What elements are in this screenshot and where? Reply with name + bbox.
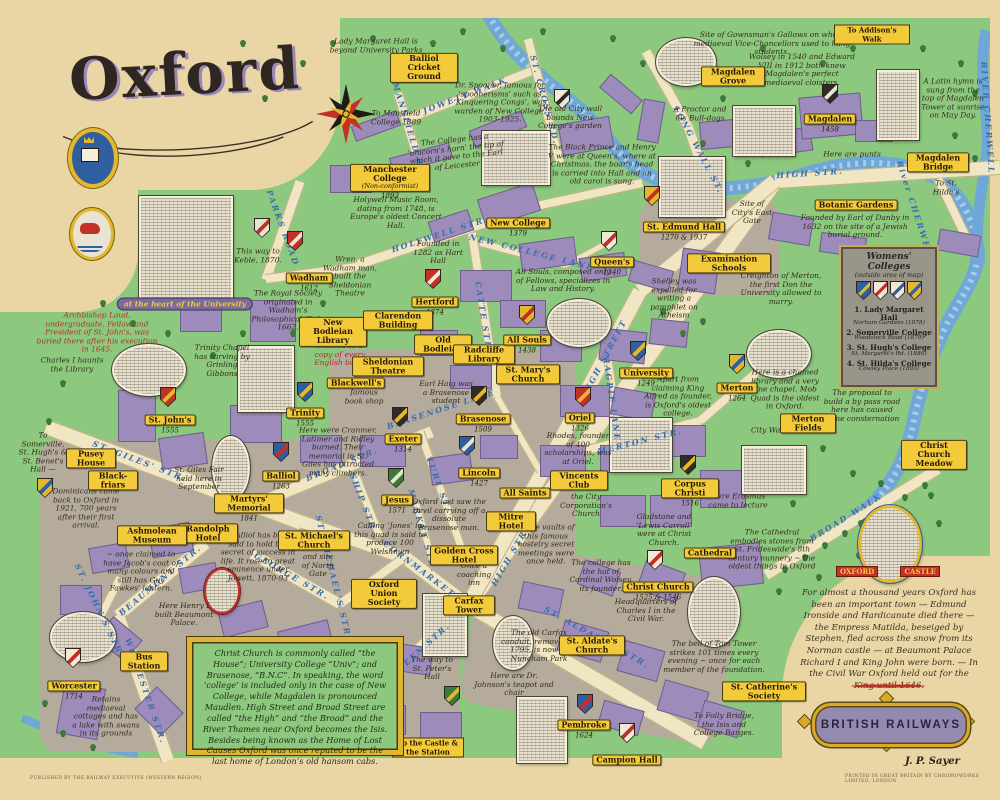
plaque-corpus-christi: Corpus Christi1516 — [661, 478, 719, 507]
plaque-label: Black-friars — [88, 470, 138, 490]
tree-icon — [952, 132, 958, 138]
tree-icon — [820, 445, 826, 451]
ox-icon — [80, 223, 100, 234]
plaque-label: All Saints — [499, 488, 550, 499]
plaque-label: Merton — [716, 383, 757, 394]
plaque-martyrs-memorial: Martyrs' Memorial1841 — [214, 493, 284, 522]
note-trinity-chapel-has-carving-by-grinling-g: Trinity Chapel has carving by Grinling G… — [192, 344, 252, 378]
plaque-label: Magdalen Grove — [701, 66, 765, 86]
ford-waves-icon — [77, 244, 103, 252]
building-block — [480, 435, 518, 459]
founding-date: 1525 & 1546 — [622, 594, 693, 602]
founding-date: 1624 — [557, 732, 610, 740]
note-the-old-city-wall-bounds-new-college-s-g: The old City wall bounds New College's g… — [531, 105, 609, 131]
plaque-label: Bus Station — [120, 651, 168, 671]
plaque-label: St. John's — [145, 415, 196, 426]
plaque-label: Ashmolean Museum — [117, 525, 187, 545]
note-shelley-was-expelled-for-writing-a-pamph: Shelley was expelled for writing a pamph… — [638, 278, 710, 321]
plaque-christ-church-meadow: Christ Church Meadow — [901, 440, 967, 470]
plaque-campion-hall: Campion Hall — [592, 748, 661, 767]
plaque-label: Pembroke — [557, 720, 610, 731]
tree-icon — [972, 155, 978, 161]
plaque-university: University1249 — [619, 361, 673, 388]
founding-date: 1555 — [286, 420, 324, 428]
womens-college-address: Cowley Place (1893) — [845, 367, 933, 373]
plaque-label: Golden Cross Hotel — [430, 545, 498, 565]
plaque-balliol-cricket-ground: Balliol Cricket Ground — [390, 53, 458, 83]
note-st-giles-fair-held-here-in-september: St. Giles Fair held here in September — [172, 466, 226, 492]
plaque-all-souls: All Souls1438 — [503, 328, 551, 355]
tree-icon — [790, 500, 796, 506]
plaque-carfax-tower: Carfax Tower — [443, 595, 495, 616]
plaque-label: Corpus Christi — [661, 478, 719, 498]
plaque-st-catherine-s-society: St. Catherine's Society — [722, 681, 806, 702]
plaque-oxford-union-society: Oxford Union Society — [351, 579, 417, 609]
plaque-st-john-s: St. John's1555 — [145, 408, 196, 435]
womens-college-address: Woodstock Road (1879) — [845, 336, 933, 342]
plaque-label: Exeter — [385, 434, 422, 445]
plaque-examination-schools: Examination Schools — [687, 253, 771, 274]
plaque-label: St. Aldate's Church — [559, 635, 625, 655]
tree-icon — [902, 494, 908, 500]
plaque-st-mary-s-church: St. Mary's Church — [496, 364, 560, 385]
tree-icon — [430, 40, 436, 46]
magdalen-cloisters-vignette — [733, 106, 795, 156]
heart-of-university-caption: at the heart of the University — [117, 298, 253, 311]
plaque-label: Jesus — [381, 495, 413, 506]
somerville-shield — [873, 281, 888, 300]
note-rhodes-founder-of-400-scholarships-was-a: Rhodes, founder of 400 scholarships, was… — [544, 432, 612, 466]
plaque-label: New Bodleian Library — [299, 317, 367, 347]
plaque-manchester-college: Manchester College(Non-conformist)1893 — [350, 164, 430, 200]
plaque-label: Queen's — [590, 257, 634, 268]
founding-date: 1264 — [716, 395, 757, 403]
womens-college-address: Norham Gardens (1878) — [845, 321, 933, 327]
tom-tower-vignette — [688, 577, 740, 647]
magdalen-tower-vignette — [877, 70, 919, 140]
plaque-label: Lincoln — [458, 468, 500, 479]
plaque-label: Carfax Tower — [443, 595, 495, 615]
womens-colleges-panel: Womens' Colleges (outside area of map) 1… — [841, 247, 937, 387]
plaque-label: Manchester College(Non-conformist) — [350, 164, 430, 192]
compass-rose-icon — [314, 82, 378, 146]
plaque-st-michael-s-church: St. Michael's Church — [278, 530, 350, 551]
note-here-are-dr-johnson-s-teapot-and-chair: Here are Dr. Johnson's teapot and chair — [472, 672, 556, 698]
note-to-folly-bridge-the-isis-and-college-bar: To Folly Bridge, the Isis and College Ba… — [690, 712, 758, 738]
tree-icon — [60, 730, 66, 736]
plaque-merton-fields: Merton Fields — [780, 413, 836, 434]
note-here-were-cranmer-latimer-and-ridley-bur: Here were Cranmer, Latimer and Ridley bu… — [298, 426, 378, 477]
founding-date: 1340 — [590, 269, 634, 277]
imprint-printer: PRINTED IN GREAT BRITAIN BY CHROMOWORKS … — [845, 774, 1000, 784]
founding-date: 1379 — [486, 230, 550, 238]
founding-date: 1509 — [456, 426, 511, 434]
womens-colleges-list: 1. Lady Margaret HallNorham Gardens (187… — [845, 306, 933, 373]
womens-college-name: 1. Lady Margaret Hall — [845, 306, 933, 321]
history-paragraph: For almost a thousand years Oxford has b… — [798, 588, 980, 692]
note-archbishop-laud-undergraduate-fellow-and: Archbishop Laud, undergraduate, Fellow a… — [35, 312, 159, 355]
tree-icon — [922, 482, 928, 488]
womens-college-address: St. Margaret's Rd. (1886) — [845, 352, 933, 358]
plaque-st-edmund-hall: St. Edmund Hall1270 & 1937 — [643, 215, 725, 242]
christ-church-naming-panel: Christ Church is commonly called “the Ho… — [187, 637, 403, 755]
st-hughs-shield-field — [891, 282, 904, 299]
founding-date: 1893 — [350, 192, 430, 200]
tree-icon — [842, 530, 848, 536]
tree-icon — [928, 492, 934, 498]
tree-icon — [165, 330, 171, 336]
plaque-oriel: Oriel1326 — [565, 406, 595, 433]
tree-icon — [90, 744, 96, 750]
note-here-are-punts: Here are punts — [823, 151, 881, 160]
plaque-magdalen-grove: Magdalen Grove — [701, 66, 765, 87]
founding-date: 1571 — [381, 507, 413, 515]
tree-icon — [100, 300, 106, 306]
high-street-vignette — [547, 299, 611, 347]
note-the-way-to-st-peter-s-hall: The way to St. Peter's Hall — [406, 656, 458, 682]
plaque-blackwell-s: Blackwell's — [327, 371, 385, 390]
crown-icon — [84, 137, 94, 143]
plaque-pembroke: Pembroke1624 — [557, 713, 610, 740]
building-block — [420, 712, 462, 740]
heart-of-university-vignette — [139, 196, 233, 300]
tree-icon — [500, 45, 506, 51]
note-to-st-hilda-s: To St. Hilda's — [927, 179, 965, 196]
plaque-label: Mitre Hotel — [486, 511, 536, 531]
tree-icon — [680, 330, 686, 336]
note-earl-haig-was-a-brasenose-student: Earl Haig was a Brasenose student — [419, 380, 473, 406]
somerville-shield-field — [874, 282, 887, 299]
founding-date: 1326 — [565, 425, 595, 433]
poster-title: Oxford — [48, 33, 321, 115]
note-this-way-to-keble-1870: This way to Keble, 1870. — [231, 247, 285, 264]
note-here-henry-i-built-beaumont-palace: Here Henry I built Beaumont Palace. — [154, 602, 214, 628]
plaque-label: Clarendon Building — [363, 310, 433, 330]
plaque-exeter: Exeter1314 — [385, 427, 422, 454]
plaque-magdalen: Magdalen1458 — [804, 107, 856, 134]
plaque-label: St. Edmund Hall — [643, 222, 725, 233]
tree-icon — [936, 520, 942, 526]
tree-icon — [610, 35, 616, 41]
plaque-label: Trinity — [286, 408, 324, 419]
sign-to-addison-s-walk: To Addison's Walk — [834, 25, 910, 46]
plaque-label: Vincents Club — [550, 470, 608, 490]
plaque-label: University — [619, 368, 673, 379]
british-railways-label: BRITISH RAILWAYS — [821, 719, 961, 731]
note-a-latin-hymn-is-sung-from-the-top-of-mag: A Latin hymn is sung from the top of Mag… — [920, 78, 986, 121]
plaque-label: Martyrs' Memorial — [214, 493, 284, 513]
tree-icon — [822, 542, 828, 548]
note-here-is-a-chained-library-and-a-very-fin: Here is a chained library and a very fin… — [747, 369, 823, 412]
tree-icon — [920, 45, 926, 51]
note-the-black-prince-and-henry-v-were-at-que: The Black Prince and Henry V were at Que… — [547, 144, 657, 187]
plaque-label: Brasenose — [456, 414, 511, 425]
plaque-label: Oriel — [565, 413, 595, 424]
tree-icon — [46, 418, 52, 424]
oxford-city-ox-crest — [70, 208, 114, 260]
note-oxford-last-saw-the-devil-carrying-off-a: Oxford last saw the Devil carrying off a… — [412, 498, 486, 532]
plaque-queen-s: Queen's1340 — [590, 250, 634, 277]
tree-icon — [60, 380, 66, 386]
tree-icon — [878, 480, 884, 486]
founding-date: 1841 — [214, 515, 284, 523]
building-block — [460, 270, 512, 302]
plaque-label: New College — [486, 218, 550, 229]
plaque-black-friars: Black-friars — [88, 470, 138, 491]
plaque-label: Botanic Gardens — [815, 200, 898, 211]
womens-colleges-shields — [845, 281, 933, 304]
plaque-sublabel: (Non-conformist) — [354, 183, 426, 190]
plaque-bus-station: Bus Station — [120, 651, 168, 672]
plaque-randolph-hotel: Randolph Hotel — [178, 523, 238, 544]
note-creighton-of-merton-the-first-don-the-un: Creighton of Merton, the first Don the U… — [739, 272, 823, 306]
tree-icon — [640, 60, 646, 66]
plaque-magdalen-bridge: Magdalen Bridge — [907, 152, 969, 173]
oxford-pictorial-map-poster: Balliol Cricket GroundManchester College… — [0, 0, 1000, 800]
note-headquarters-of-charles-i-in-the-civil-w: Headquarters of Charles I in the Civil W… — [612, 598, 680, 624]
plaque-label: Balliol — [262, 471, 299, 482]
plaque-worcester: Worcester1714 — [47, 674, 100, 701]
imprint-publisher: PUBLISHED BY THE RAILWAY EXECUTIVE (WEST… — [30, 776, 202, 781]
plaque-lincoln: Lincoln1427 — [458, 461, 500, 488]
oxford-castle-ribbon: OXFORD CASTLE — [836, 566, 940, 577]
plaque-label: Pusey House — [66, 448, 116, 468]
open-book-icon — [81, 148, 99, 162]
note-founded-in-1282-as-hart-hall: Founded in 1282 as Hart Hall — [409, 240, 467, 266]
note-the-city-corporation-s-church: the City Corporation's Church — [559, 493, 613, 519]
note-once-claimed-to-have-jacob-s-coat-of-man: ~ once claimed to have Jacob's coat of m… — [103, 551, 179, 594]
founding-date: 1427 — [458, 480, 500, 488]
plaque-wadham: Wadham1612 — [286, 266, 333, 293]
plaque-label: St. Mary's Church — [496, 364, 560, 384]
founding-date: 1516 — [661, 500, 719, 508]
st-hildas-shield — [907, 281, 922, 300]
artist-signature: J. P. Sayer — [905, 756, 960, 767]
plaque-all-saints: All Saints — [499, 481, 550, 500]
plaque-label: Christ Church Meadow — [901, 440, 967, 470]
note-founded-by-earl-of-danby-in-1632-on-the-: Founded by Earl of Danby in 1632 on the … — [795, 214, 915, 240]
plaque-label: Balliol Cricket Ground — [390, 53, 458, 83]
tree-icon — [850, 470, 856, 476]
plaque-cathedral: Cathedral — [684, 541, 736, 560]
plaque-brasenose: Brasenose1509 — [456, 407, 511, 434]
st-hildas-shield-field — [908, 282, 921, 299]
castle-ribbon-left: OXFORD — [836, 566, 878, 577]
founding-date: 1458 — [804, 126, 856, 134]
tree-icon — [776, 588, 782, 594]
plaque-label: All Souls — [503, 335, 551, 346]
plaque-label: Blackwell's — [327, 378, 385, 389]
red-flourish — [845, 684, 931, 688]
plaque-label: Christ Church — [622, 582, 693, 593]
plaque-merton: Merton1264 — [716, 376, 757, 403]
founding-date: 1270 & 1937 — [643, 234, 725, 242]
plaque-new-college: New College1379 — [486, 211, 550, 238]
note-site-of-city-s-east-gate: Site of City's East Gate — [728, 200, 776, 226]
christ-church-naming-text: Christ Church is commonly called “the Ho… — [200, 648, 390, 767]
plaque-new-bodleian-library: New Bodleian Library — [299, 317, 367, 347]
founding-date: 1249 — [619, 380, 673, 388]
plaque-label: Examination Schools — [687, 253, 771, 273]
castle-ribbon-right: CASTLE — [900, 566, 940, 577]
plaque-jesus: Jesus1571 — [381, 488, 413, 515]
note-the-bell-of-tom-tower-strikes-101-times-: The bell of Tom Tower strikes 101 times … — [663, 640, 765, 674]
lady-margaret-hall-shield-field — [857, 282, 870, 299]
plaque-label: Magdalen — [804, 114, 856, 125]
plaque-label: Wadham — [286, 273, 333, 284]
plaque-vincents-club: Vincents Club — [550, 470, 608, 491]
plaque-mitre-hotel: Mitre Hotel — [486, 511, 536, 532]
founding-date: 1438 — [503, 347, 551, 355]
note-famous-book-shop: famous book shop — [342, 388, 386, 405]
founding-date: 1263 — [262, 483, 299, 491]
university-arms-crest — [68, 128, 118, 188]
plaque-label: St. Catherine's Society — [722, 681, 806, 701]
plaque-trinity: Trinity1555 — [286, 401, 324, 428]
tree-icon — [958, 60, 964, 66]
sign-label: To Addison's Walk — [834, 25, 910, 45]
lady-margaret-hall-shield — [856, 281, 871, 300]
plaque-clarendon-building: Clarendon Building — [363, 310, 433, 331]
note-charles-i-haunts-the-library: Charles I haunts the Library — [38, 356, 106, 373]
st-hughs-shield — [890, 281, 905, 300]
plaque-label: Cathedral — [684, 548, 736, 559]
founding-date: 1555 — [145, 427, 196, 435]
plaque-label: Merton Fields — [780, 413, 836, 433]
plaque-label: Magdalen Bridge — [907, 152, 969, 172]
founding-date: 1612 — [286, 285, 333, 293]
note-a-proctor-and-his-bull-dogs: A Proctor and his Bull-dogs — [671, 105, 729, 122]
tree-icon — [540, 28, 546, 34]
tree-icon — [460, 28, 466, 34]
plaque-label: Oxford Union Society — [351, 579, 417, 609]
plaque-botanic-gardens: Botanic Gardens — [815, 193, 898, 212]
british-railways-badge: BRITISH RAILWAYS — [812, 703, 970, 747]
tree-icon — [816, 574, 822, 580]
note-and-site-of-north-gate: and site of North Gate — [299, 553, 337, 579]
womens-colleges-subtitle: (outside area of map) — [845, 272, 933, 279]
note-holywell-music-room-dating-from-1748-is-: Holywell Music Room, dating from 1748, i… — [350, 196, 442, 230]
plaque-label: Campion Hall — [592, 755, 661, 766]
plaque-golden-cross-hotel: Golden Cross Hotel — [430, 545, 498, 566]
note-retains-mediaeval-cottages-and-has-a-lak: Retains mediaeval cottages and has a lak… — [72, 696, 140, 739]
plaque-label: Hertford — [411, 297, 458, 308]
plaque-christ-church: Christ Church1525 & 1546 — [622, 575, 693, 602]
christ-church-meadow-vignette — [742, 446, 806, 494]
note-the-cathedral-embodies-stones-from-st-fr: The Cathedral embodies stones from St. F… — [726, 529, 818, 572]
title-text: Oxford — [67, 34, 302, 114]
tree-icon — [42, 700, 48, 706]
founding-date: 1714 — [47, 693, 100, 701]
founding-date: 1314 — [385, 446, 422, 454]
plaque-ashmolean-museum: Ashmolean Museum — [117, 525, 187, 546]
note-to-somerville-st-hugh-s-st-benet-s-hall: To Somerville, St. Hugh's & St. Benet's … — [17, 432, 69, 475]
plaque-label: St. Michael's Church — [278, 530, 350, 550]
note-dominicans-came-back-to-oxford-in-1921-7: Dominicans came back to Oxford in 1921, … — [48, 488, 124, 531]
plaque-label: Worcester — [47, 681, 100, 692]
plaque-pusey-house: Pusey House — [66, 448, 116, 469]
womens-colleges-title: Womens' Colleges — [845, 252, 933, 272]
plaque-st-aldate-s-church: St. Aldate's Church — [559, 635, 625, 656]
tree-icon — [745, 160, 751, 166]
plaque-balliol: Balliol1263 — [262, 464, 299, 491]
tree-icon — [720, 95, 726, 101]
plaque-label: Randolph Hotel — [178, 523, 238, 543]
